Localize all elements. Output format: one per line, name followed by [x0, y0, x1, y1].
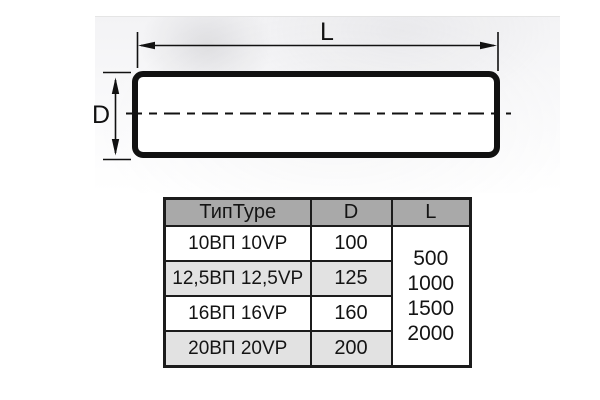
product-spec-image: L D ТипType D L 10ВП 10VP 100 500 1000 1…: [0, 0, 600, 400]
table-row: 10ВП 10VP 100 500 1000 1500 2000: [165, 226, 471, 261]
header-type: ТипType: [165, 199, 311, 227]
l-values-cell: 500 1000 1500 2000: [392, 226, 471, 367]
arrowhead-right-icon: [480, 42, 497, 50]
arrowhead-left-icon: [138, 42, 155, 50]
type-cell: 16ВП 16VP: [165, 296, 311, 331]
l-value: 1500: [393, 296, 470, 321]
l-value: 1000: [393, 271, 470, 296]
d-cell: 200: [311, 331, 392, 367]
arrowhead-down-icon: [112, 139, 119, 156]
type-cell: 10ВП 10VP: [165, 226, 311, 261]
spec-table: ТипType D L 10ВП 10VP 100 500 1000 1500 …: [163, 197, 472, 368]
length-label: L: [320, 18, 334, 46]
diameter-label: D: [92, 101, 110, 129]
arrowhead-up-icon: [112, 78, 119, 95]
l-value: 2000: [393, 321, 470, 346]
l-value: 500: [393, 246, 470, 271]
d-cell: 160: [311, 296, 392, 331]
d-cell: 125: [311, 261, 392, 296]
header-l: L: [392, 199, 471, 227]
d-cell: 100: [311, 226, 392, 261]
header-row: ТипType D L: [165, 199, 471, 227]
type-cell: 20ВП 20VP: [165, 331, 311, 367]
duct-dimension-diagram: L D: [0, 0, 600, 200]
type-cell: 12,5ВП 12,5VP: [165, 261, 311, 296]
header-d: D: [311, 199, 392, 227]
